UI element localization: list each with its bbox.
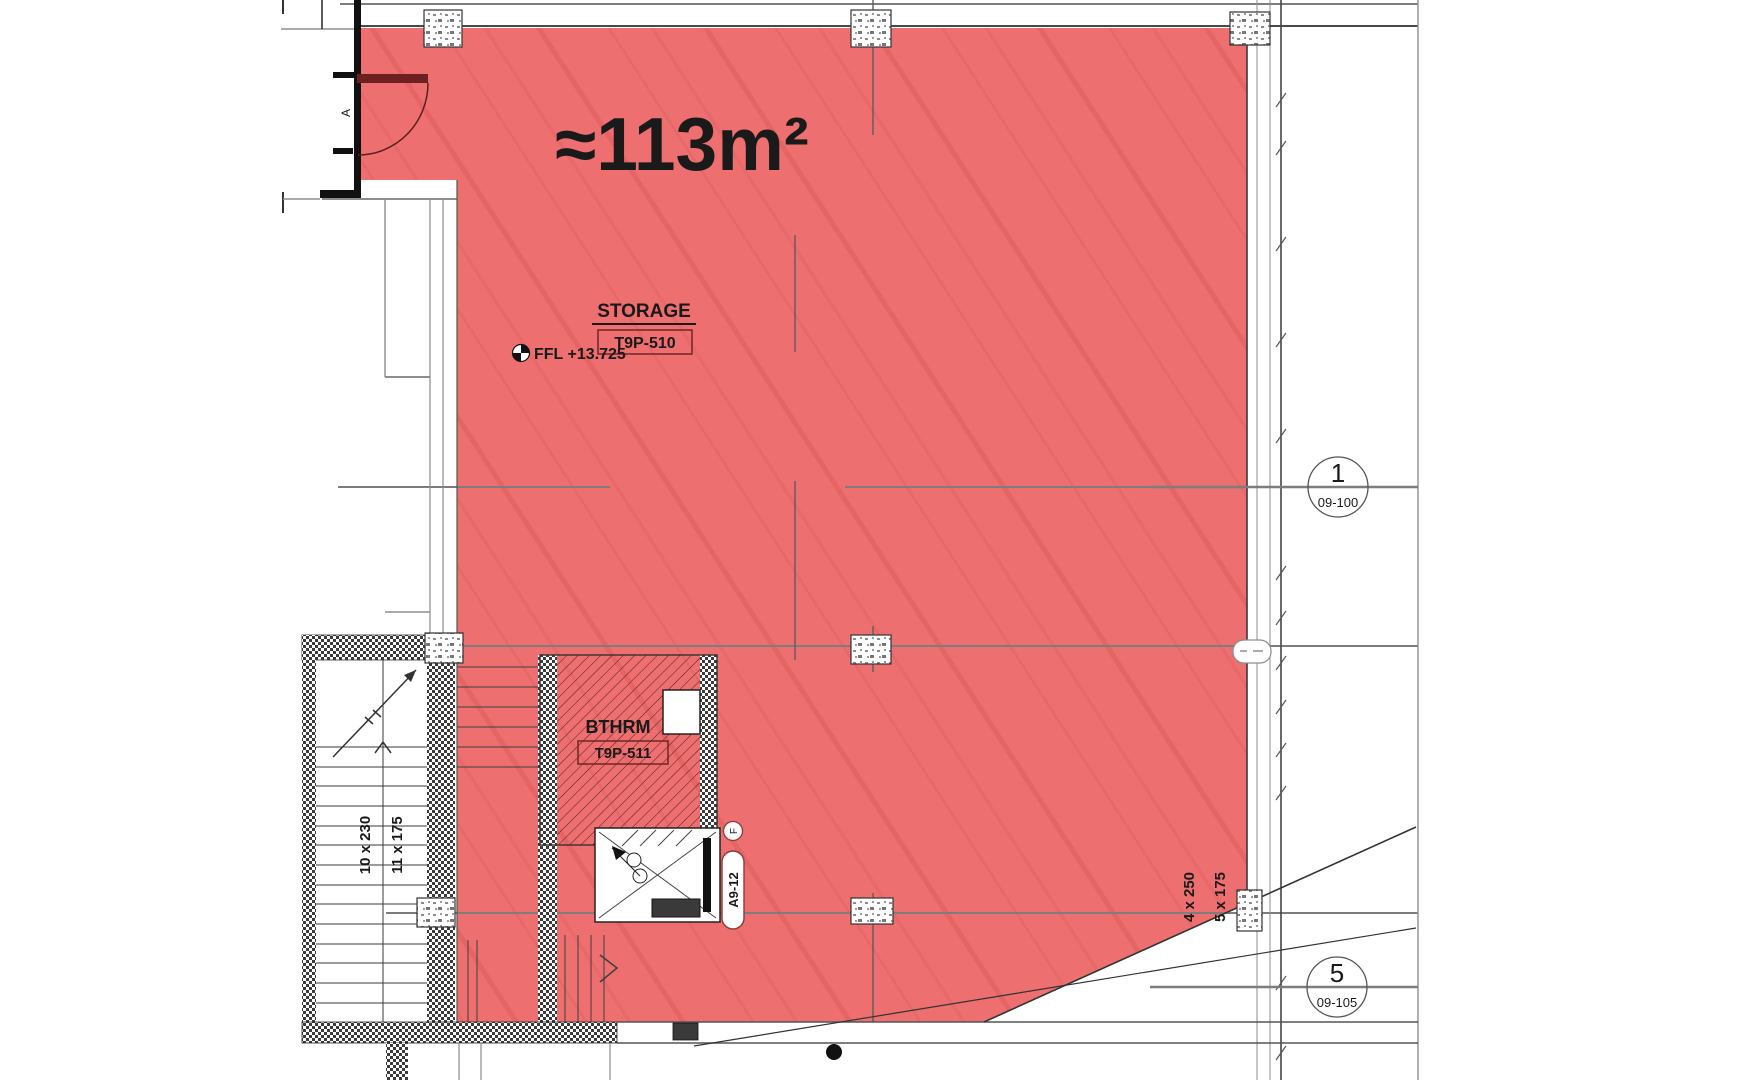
floor-plan-canvas: F A9-12 1 09	[0, 0, 1755, 1080]
elevator-door	[652, 899, 700, 917]
door-leaf	[357, 74, 428, 83]
bathroom-fixture	[663, 690, 700, 734]
threshold-marker	[673, 1023, 698, 1040]
stair-left-run-a: 10 x 230	[357, 816, 374, 874]
stair-right-wall	[427, 660, 455, 1022]
level-marker-text: FFL +13.725	[534, 346, 626, 363]
lift-tag-bubble-text: F	[729, 828, 740, 834]
area-label: ≈113m²	[555, 102, 809, 186]
elevator	[595, 828, 720, 922]
survey-point-dot	[826, 1044, 842, 1060]
wall-tag-stadium	[1233, 640, 1271, 663]
stair-left-run-b: 11 x 175	[389, 816, 406, 874]
grid-bubble-1-ref: 09-100	[1318, 495, 1358, 510]
party-wall	[354, 0, 361, 198]
grid-bubble-5-ref: 09-105	[1317, 995, 1357, 1010]
stair-left-wall	[302, 635, 316, 1043]
elevator-wall-bar	[703, 838, 711, 912]
lift-tag-text: A9-12	[726, 872, 741, 907]
stair-right-run-b: 5 x 175	[1212, 872, 1229, 922]
bathroom-right-wall	[700, 655, 717, 845]
stair-top-wall	[302, 635, 427, 660]
floor-plan-drawing: F A9-12 1 09	[0, 0, 1755, 1080]
stair-right-run-a: 4 x 250	[1181, 872, 1198, 922]
grid-bubble-1-number: 1	[1331, 458, 1345, 488]
bathroom-tag: T9P-511	[595, 745, 652, 762]
door-tag-text: A	[339, 109, 353, 117]
grid-bubble-5-number: 5	[1330, 958, 1344, 988]
bathroom-left-wall	[538, 655, 557, 1022]
bathroom-name: BTHRM	[586, 717, 651, 737]
storage-name: STORAGE	[597, 301, 691, 322]
